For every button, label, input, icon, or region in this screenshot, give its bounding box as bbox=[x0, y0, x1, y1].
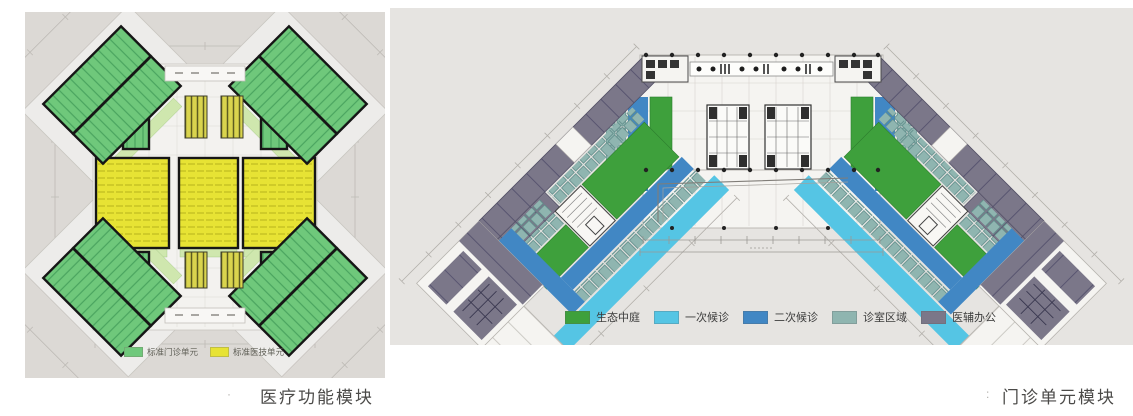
legend-swatch-eco-atrium bbox=[565, 311, 590, 324]
page: 标准门诊单元 标准医技单元 bbox=[0, 0, 1133, 416]
legend-item-eco-atrium: 生态中庭 bbox=[565, 309, 640, 325]
left-figure-caption: 医疗功能模块 bbox=[260, 383, 374, 408]
legend-swatch-first-waiting bbox=[654, 311, 679, 324]
legend-swatch-outpatient bbox=[124, 347, 143, 357]
top-entrance-band bbox=[690, 62, 833, 76]
left-floor-plan-image bbox=[25, 12, 385, 378]
legend-label-eco-atrium: 生态中庭 bbox=[596, 309, 640, 325]
right-figure-caption: 门诊单元模块 bbox=[1002, 383, 1116, 408]
legend-label-second-waiting: 二次候诊 bbox=[774, 309, 818, 325]
legend-swatch-medtech bbox=[210, 347, 229, 357]
legend-item-first-waiting: 一次候诊 bbox=[654, 309, 729, 325]
legend-label-medtech: 标准医技单元 bbox=[233, 346, 284, 358]
legend-item-outpatient: 标准门诊单元 bbox=[124, 346, 198, 358]
legend-swatch-support-office bbox=[921, 311, 946, 324]
legend-label-support-office: 医辅办公 bbox=[952, 309, 996, 325]
right-plan-legend: 生态中庭 一次候诊 二次候诊 诊室区域 医辅办公 bbox=[565, 309, 996, 325]
legend-item-consult-rooms: 诊室区域 bbox=[832, 309, 907, 325]
right-floor-plan-image bbox=[390, 8, 1133, 345]
left-plan-legend: 标准门诊单元 标准医技单元 bbox=[124, 346, 284, 358]
right-caption-marker: : bbox=[986, 387, 989, 401]
legend-label-outpatient: 标准门诊单元 bbox=[147, 346, 198, 358]
left-caption-marker: · bbox=[227, 387, 231, 401]
legend-item-medtech: 标准医技单元 bbox=[210, 346, 284, 358]
legend-item-second-waiting: 二次候诊 bbox=[743, 309, 818, 325]
legend-swatch-second-waiting bbox=[743, 311, 768, 324]
medtech-unit-blocks bbox=[96, 158, 315, 248]
legend-swatch-consult-rooms bbox=[832, 311, 857, 324]
legend-label-first-waiting: 一次候诊 bbox=[685, 309, 729, 325]
legend-label-consult-rooms: 诊室区域 bbox=[863, 309, 907, 325]
legend-item-support-office: 医辅办公 bbox=[921, 309, 996, 325]
